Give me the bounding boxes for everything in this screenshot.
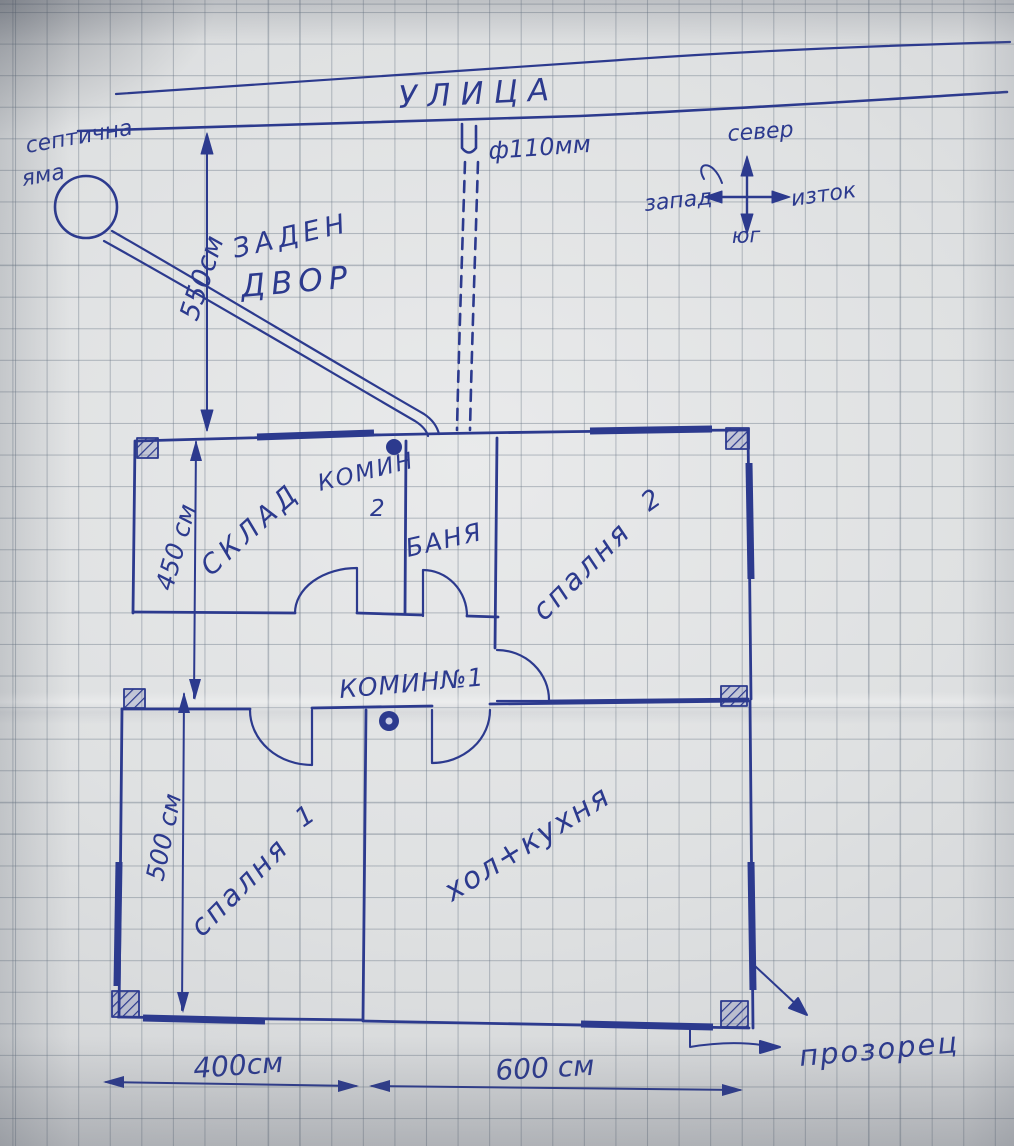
chimney2-number: 2 <box>370 496 385 522</box>
street-label: УЛИЦА <box>398 72 560 116</box>
septic-pit-label-line2: яма <box>20 160 67 192</box>
sewer-pipe-label: ф110мм <box>487 130 591 165</box>
back-yard-label-line2: ДВОР <box>238 259 355 305</box>
dimension-600-label: 600 см <box>495 1049 595 1087</box>
chimney1-label: КОМИН№1 <box>338 662 485 704</box>
compass-flourish <box>701 165 722 183</box>
compass-east-label: изток <box>789 178 858 212</box>
window-left-bedroom1 <box>117 862 119 986</box>
window-callout-label: прозорец <box>798 1025 961 1073</box>
door-bedroom1 <box>250 710 312 765</box>
septic-pipe-diagonal-1 <box>112 231 439 434</box>
compass-west-label: запад <box>643 185 714 217</box>
compass-south-label: юг <box>731 223 761 248</box>
room-storage-label: СКЛАД <box>195 477 307 582</box>
floor-plan-sketch-photo: УЛИЦА септична яма 550см ЗАДЕН ДВОР ф110… <box>0 0 1014 1146</box>
dimension-400-label: 400см <box>192 1046 284 1085</box>
dimension-550-label: 550см <box>174 232 230 324</box>
door-bedroom2 <box>497 650 549 701</box>
door-living <box>432 710 490 763</box>
window-bottom-bedroom1 <box>143 1018 265 1021</box>
sewer-pipe-dashed-right <box>470 162 478 430</box>
room-bedroom2-label: спалня <box>525 514 638 627</box>
window-top-storage <box>257 433 374 437</box>
chimney1-dot-center <box>386 718 393 725</box>
chimney2-label: КОМИН <box>315 448 417 497</box>
dimension-500-line <box>182 694 184 1010</box>
door-arcs <box>250 568 549 765</box>
compass-north-label: север <box>727 117 795 147</box>
room-bedroom2-number: 2 <box>636 484 667 518</box>
compass <box>701 156 790 234</box>
sewer-pipe-dashed-left <box>457 162 465 430</box>
ink-drawing: УЛИЦА септична яма 550см ЗАДЕН ДВОР ф110… <box>0 0 1014 1146</box>
room-living-kitchen-label: хол+кухня <box>437 779 617 910</box>
room-bedroom1-number: 1 <box>290 800 321 834</box>
pipe-inlet <box>462 124 476 153</box>
back-yard-label-line1: ЗАДЕН <box>230 208 353 265</box>
door-storage <box>295 568 357 613</box>
septic-pit-circle <box>55 176 117 238</box>
arrowhead <box>201 410 213 431</box>
dimension-500-label: 500 см <box>141 791 188 883</box>
door-bath <box>423 570 467 616</box>
arrowhead <box>201 133 213 154</box>
window-right-bedroom2 <box>749 463 751 579</box>
dimension-600-line <box>372 1086 740 1090</box>
room-bedroom1-label: спалня <box>183 830 296 943</box>
septic-pit-label-line1: септична <box>24 116 135 159</box>
window-bottom-living <box>581 1024 713 1027</box>
dimension-400-line <box>106 1082 356 1086</box>
dimension-450-line <box>194 442 196 698</box>
house-walls <box>118 430 753 1028</box>
room-bath-label: БАНЯ <box>403 517 486 563</box>
window-right-living <box>751 862 753 990</box>
window-top-bedroom2 <box>590 429 712 431</box>
street-edge-line <box>116 42 1010 94</box>
